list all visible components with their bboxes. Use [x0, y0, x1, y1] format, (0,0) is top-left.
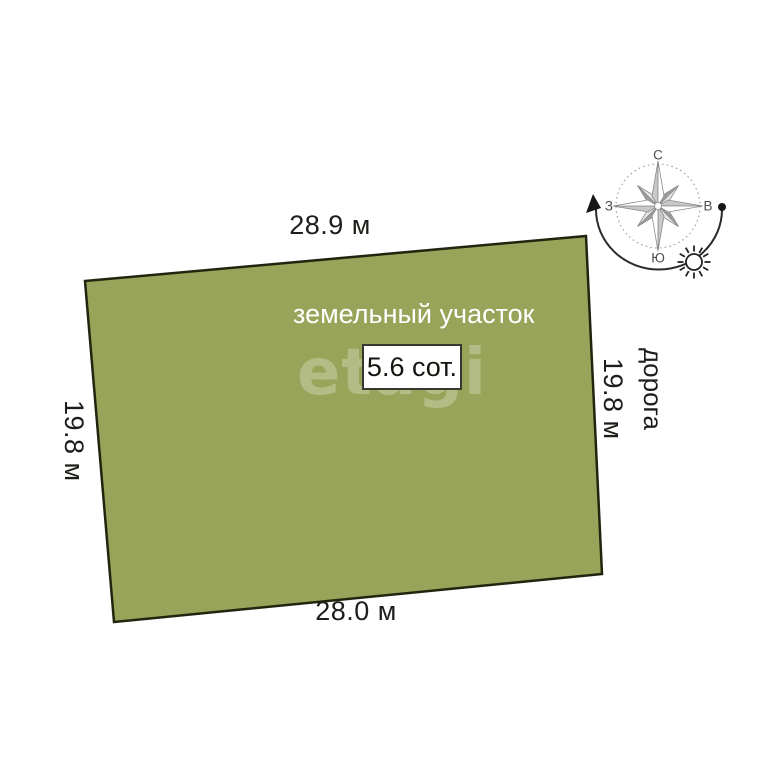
plot-title: земельный участок	[293, 299, 533, 330]
compass-west-label: З	[605, 199, 613, 214]
compass-east-label: В	[703, 199, 712, 214]
compass-south-label: Ю	[651, 251, 665, 266]
area-value: 5.6 сот.	[367, 352, 457, 383]
dimension-bottom: 28.0 м	[296, 596, 416, 627]
road-label: дорога	[637, 348, 668, 444]
dimension-right: 19.8 м	[597, 358, 628, 448]
dimension-top: 28.9 м	[270, 210, 390, 241]
area-badge: 5.6 сот.	[362, 344, 462, 390]
sun-path-start-dot	[718, 203, 726, 211]
compass-north-label: С	[653, 148, 663, 163]
dimension-left: 19.8 м	[58, 400, 89, 496]
land-plot-shape	[85, 236, 602, 622]
arrowhead-icon	[586, 194, 601, 213]
land-plot-scheme: С В Ю З etagi 28.9 м 28.0 м 19.8 м 19.8 …	[0, 0, 768, 768]
compass-rose-icon: С В Ю З	[605, 148, 713, 266]
